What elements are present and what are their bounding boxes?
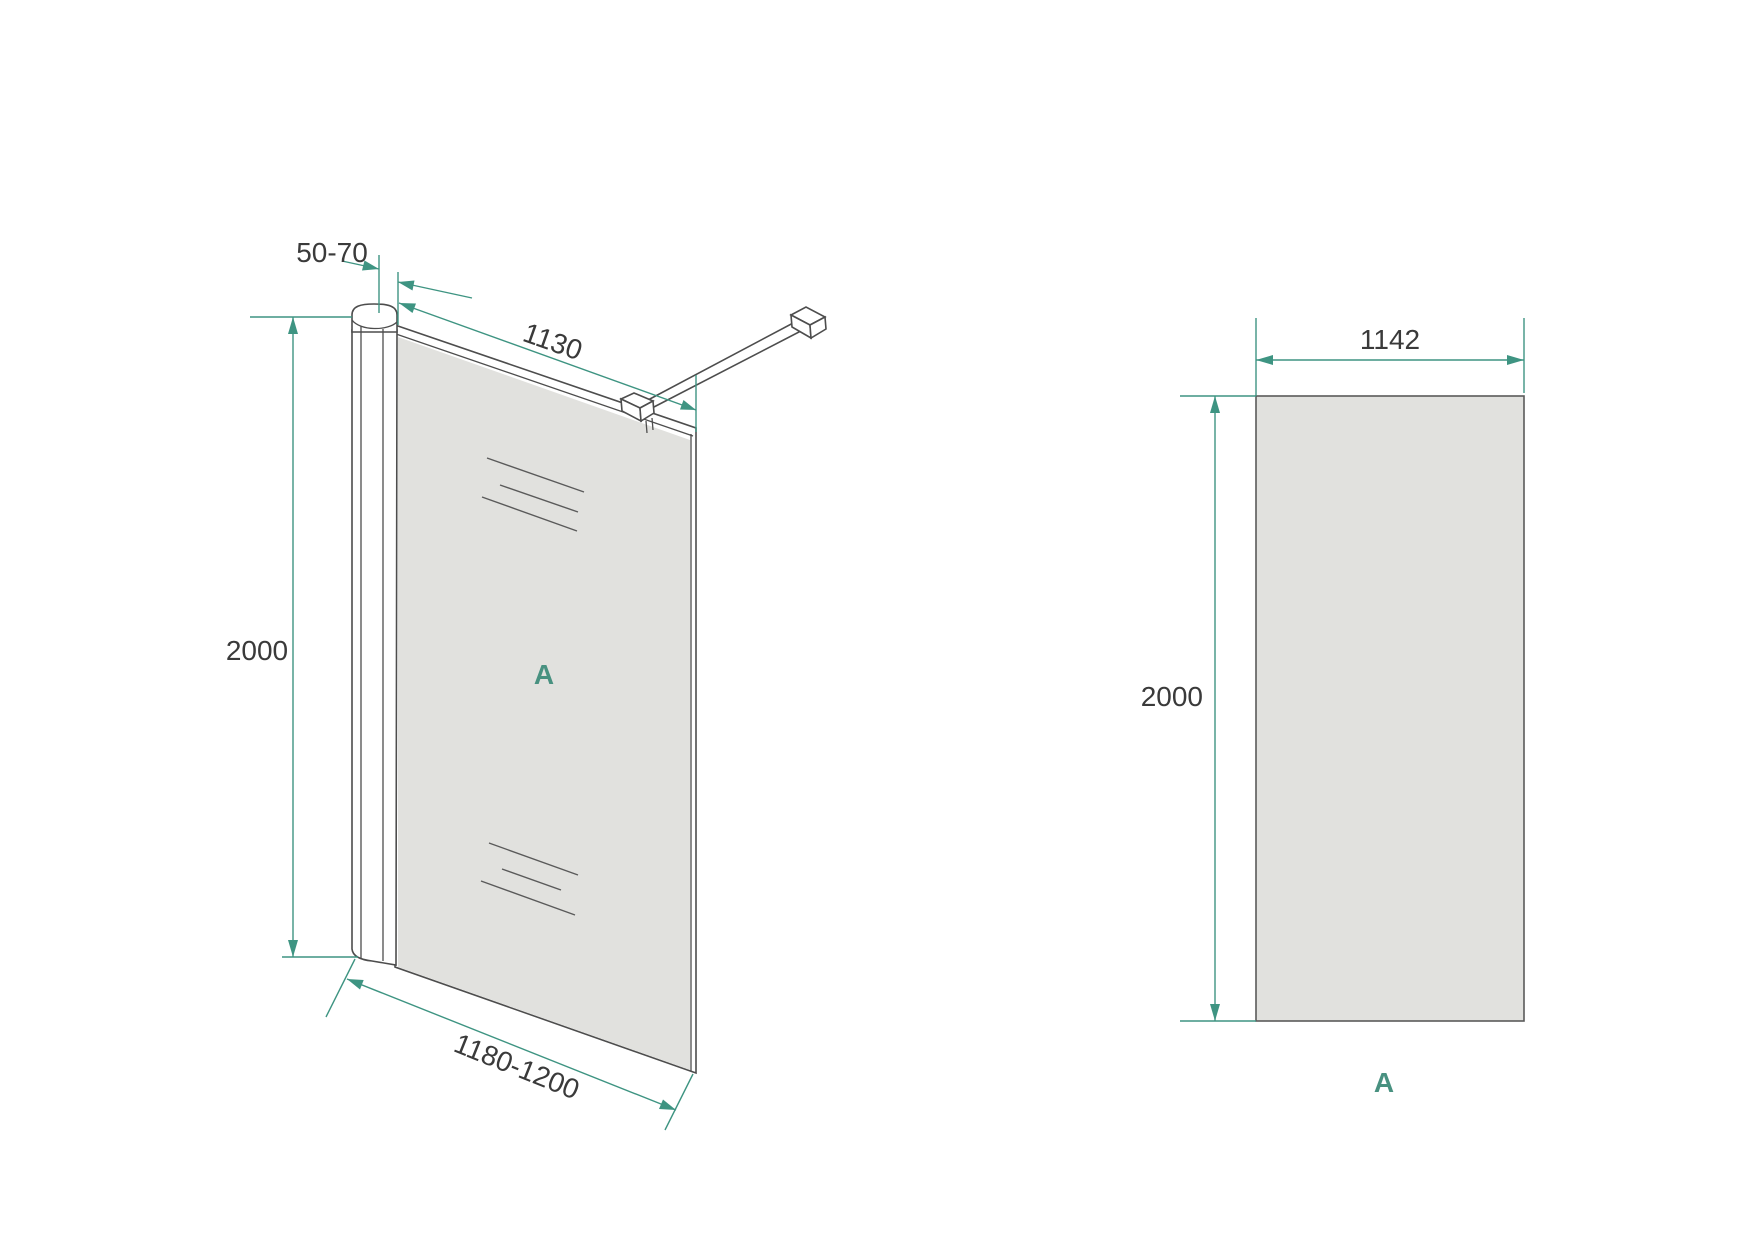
dimension-arrow xyxy=(1210,1004,1220,1021)
dimension-arrow xyxy=(399,303,416,313)
dim-front-width-label: 1142 xyxy=(1360,324,1420,355)
dimension-arrow xyxy=(680,400,696,410)
wall-profile xyxy=(352,304,397,965)
dim-front-height-label: 2000 xyxy=(1141,681,1203,712)
dim-front-height: 2000 xyxy=(1141,396,1256,1021)
dimension-arrow xyxy=(659,1100,676,1111)
dim-front-width: 1142 xyxy=(1256,318,1524,396)
panel-label: A xyxy=(1374,1067,1394,1098)
dim-height-label: 2000 xyxy=(226,635,288,666)
dimension-arrow xyxy=(347,979,364,990)
drawing-svg: 50-70 1130 2000 1180-1200 xyxy=(0,0,1754,1241)
glass-panel xyxy=(395,325,696,1073)
dimension-arrow xyxy=(288,940,298,957)
dim-install-width-label: 1180-1200 xyxy=(450,1028,584,1106)
dimension-arrow xyxy=(1210,396,1220,413)
dimension-arrow xyxy=(398,281,415,291)
extension-line xyxy=(326,959,355,1017)
glass-panel-front xyxy=(1256,396,1524,1021)
dim-profile-adjustment-label: 50-70 xyxy=(296,237,368,268)
stabilizer-bar xyxy=(621,307,826,433)
extension-line xyxy=(665,1074,693,1130)
dimension-arrow xyxy=(1256,355,1273,365)
dim-height: 2000 xyxy=(226,317,358,957)
dimension-arrow xyxy=(1507,355,1524,365)
technical-drawing: 50-70 1130 2000 1180-1200 xyxy=(0,0,1754,1241)
dimension-arrow xyxy=(288,317,298,334)
panel-label: A xyxy=(534,659,554,690)
side-view: 50-70 1130 2000 1180-1200 xyxy=(226,237,826,1130)
front-view: 1142 2000 A xyxy=(1141,318,1524,1098)
